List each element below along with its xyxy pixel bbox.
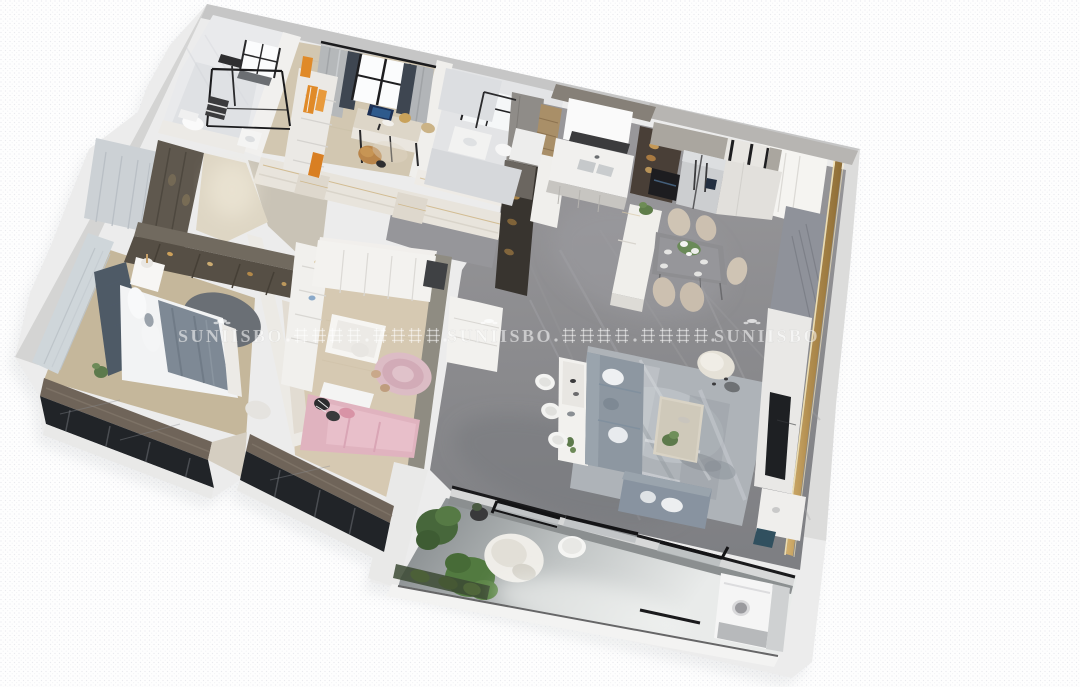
svg-text:SUNIISBO: SUNIISBO [178,326,284,346]
svg-text:SUNIISBO: SUNIISBO [447,326,553,346]
svg-text:SUNIISBO: SUNIISBO [714,326,820,346]
